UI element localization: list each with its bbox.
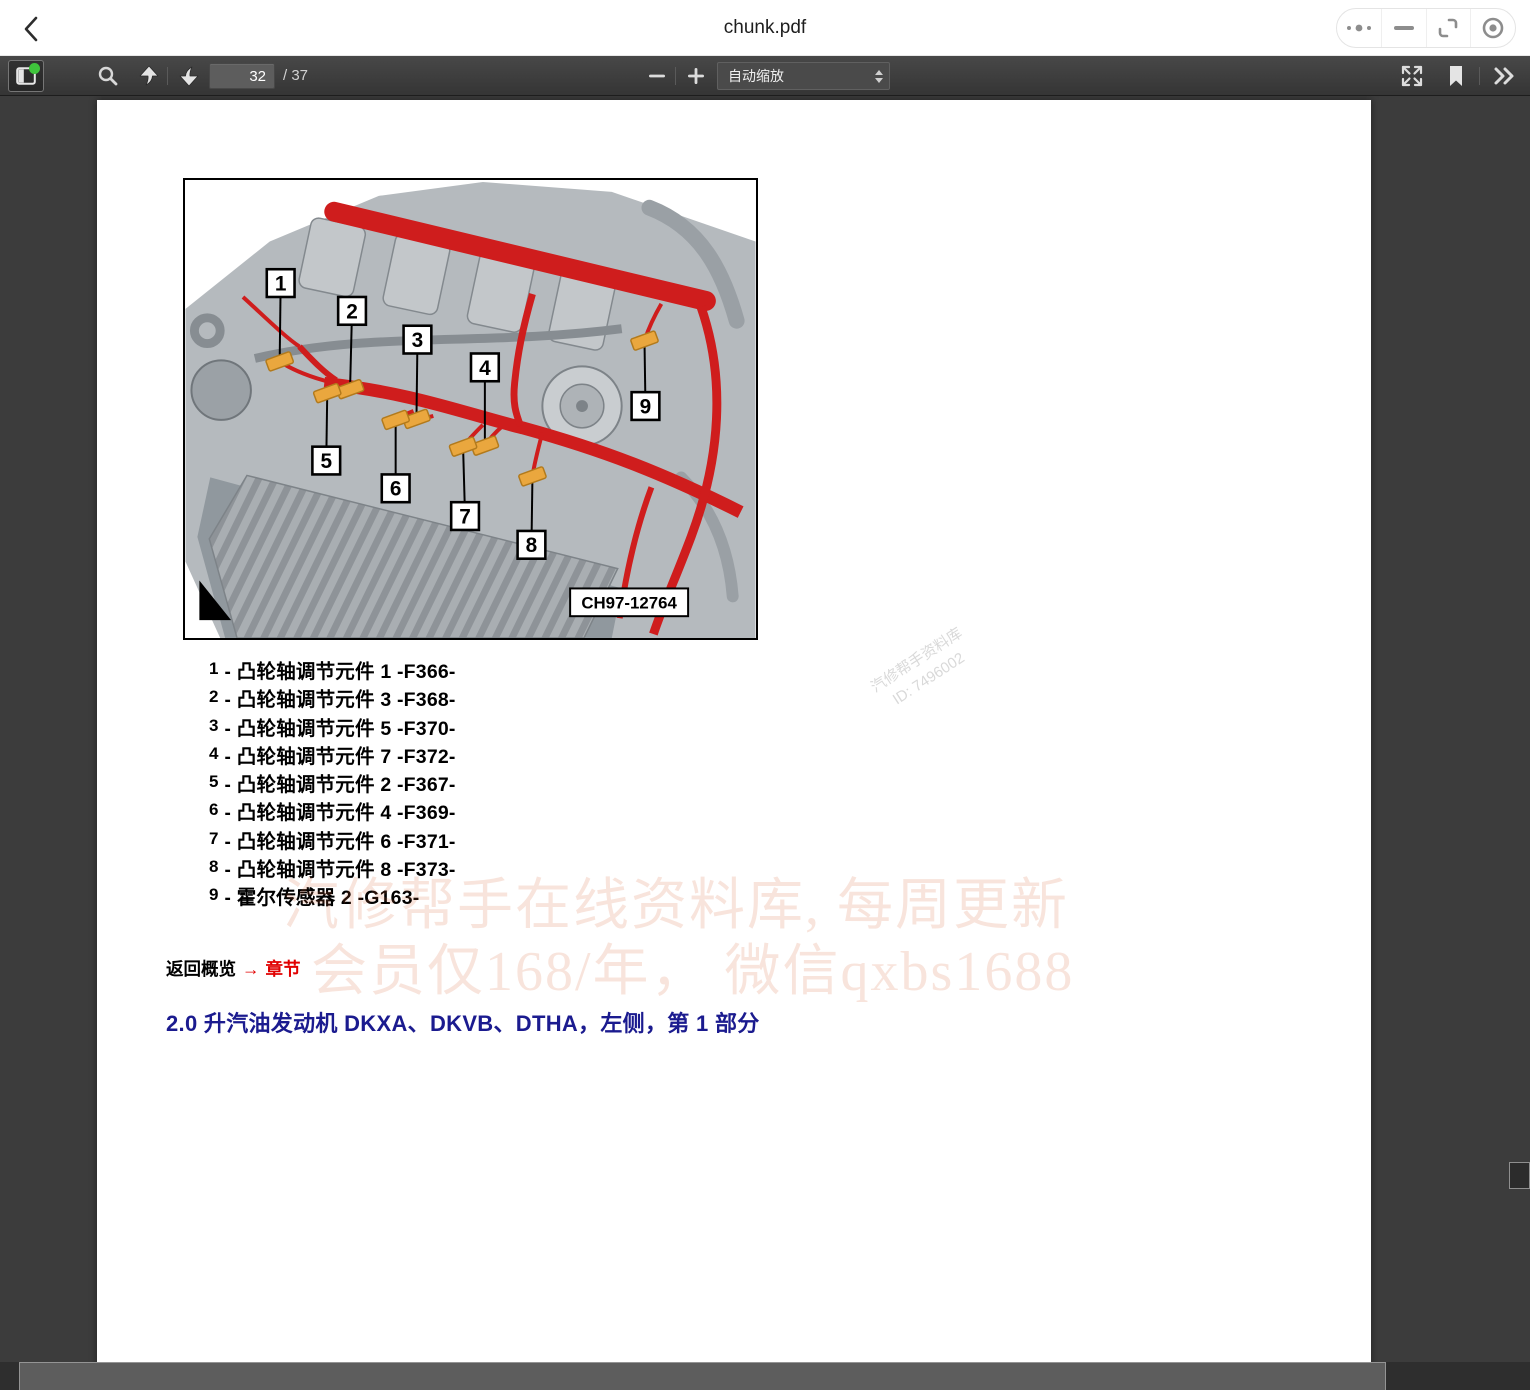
zoom-in-button[interactable] bbox=[684, 56, 708, 96]
more-tools-button[interactable] bbox=[1488, 56, 1520, 96]
presentation-mode-button[interactable] bbox=[1399, 56, 1425, 96]
legend-item-number: 9 bbox=[209, 885, 218, 904]
plus-icon bbox=[688, 68, 704, 84]
legend-item-text: 凸轮轴调节元件 7 -F372- bbox=[237, 746, 456, 768]
double-chevron-right-icon bbox=[1492, 66, 1516, 86]
legend-separator: - bbox=[224, 803, 230, 824]
legend-item-number: 7 bbox=[209, 829, 218, 848]
circle-dot-button[interactable] bbox=[1470, 9, 1515, 47]
legend-separator: - bbox=[224, 860, 230, 881]
engine-figure: 123456789 CH97-12764 bbox=[183, 178, 758, 640]
section-heading: 2.0 升汽油发动机 DKXA、DKVB、DTHA，左侧，第 1 部分 bbox=[166, 1006, 760, 1038]
callout-number-label: 2 bbox=[346, 300, 358, 323]
vertical-scrollbar-thumb[interactable] bbox=[1509, 1162, 1530, 1189]
pdf-viewer-area[interactable]: 123456789 CH97-12764 1-凸轮轴调节元件 1 -F366-2… bbox=[0, 96, 1530, 1390]
legend-separator: - bbox=[224, 775, 230, 796]
page-number-input[interactable] bbox=[209, 63, 275, 89]
back-link-label: 返回概览 bbox=[166, 959, 236, 979]
legend-separator: - bbox=[224, 662, 230, 683]
legend-item-number: 3 bbox=[209, 716, 218, 735]
arrow-up-icon bbox=[138, 65, 160, 87]
back-to-overview: 返回概览→章节 bbox=[166, 956, 301, 981]
legend-list: 1-凸轮轴调节元件 1 -F366-2-凸轮轴调节元件 3 -F368-3-凸轮… bbox=[209, 658, 456, 913]
callout-number-label: 1 bbox=[275, 273, 287, 296]
search-icon bbox=[97, 65, 119, 87]
legend-item-text: 凸轮轴调节元件 8 -F373- bbox=[237, 859, 456, 881]
bookmark-button[interactable] bbox=[1443, 56, 1469, 96]
select-spinner-icon bbox=[869, 70, 889, 83]
sidebar-toggle-button[interactable] bbox=[8, 60, 44, 92]
list-item: 9-霍尔传感器 2 -G163- bbox=[209, 884, 456, 912]
watermark-line-2: 会员仅168/年， 微信qxbs1688 bbox=[311, 926, 1074, 1007]
legend-item-number: 6 bbox=[209, 800, 218, 819]
restore-window-button[interactable] bbox=[1426, 9, 1471, 47]
bookmark-icon bbox=[1447, 65, 1465, 87]
legend-item-text: 凸轮轴调节元件 2 -F367- bbox=[237, 774, 456, 796]
horizontal-scrollbar-track[interactable] bbox=[0, 1362, 1530, 1390]
minimize-icon bbox=[1393, 24, 1415, 32]
zoom-scale-select[interactable]: 自动缩放 bbox=[717, 62, 890, 90]
list-item: 8-凸轮轴调节元件 8 -F373- bbox=[209, 856, 456, 884]
toolbar-divider bbox=[675, 67, 676, 85]
legend-item-text: 凸轮轴调节元件 3 -F368- bbox=[237, 689, 456, 711]
legend-item-text: 霍尔传感器 2 -G163- bbox=[237, 887, 420, 909]
previous-page-button[interactable] bbox=[136, 56, 162, 96]
legend-separator: - bbox=[224, 888, 230, 909]
pdf-toolbar: / 37 自动缩放 bbox=[0, 56, 1530, 96]
page-count-label: / 37 bbox=[283, 56, 308, 96]
toolbar-divider bbox=[1479, 67, 1480, 85]
callout-number-label: 6 bbox=[390, 478, 402, 501]
next-page-button[interactable] bbox=[176, 56, 202, 96]
legend-item-number: 4 bbox=[209, 744, 218, 763]
legend-separator: - bbox=[224, 747, 230, 768]
circle-dot-icon bbox=[1481, 16, 1505, 40]
list-item: 3-凸轮轴调节元件 5 -F370- bbox=[209, 715, 456, 743]
legend-item-text: 凸轮轴调节元件 6 -F371- bbox=[237, 831, 456, 853]
chapter-link[interactable]: 章节 bbox=[266, 959, 301, 979]
legend-item-text: 凸轮轴调节元件 4 -F369- bbox=[237, 802, 456, 824]
list-item: 6-凸轮轴调节元件 4 -F369- bbox=[209, 799, 456, 827]
fullscreen-icon bbox=[1401, 65, 1423, 87]
callout-number-label: 9 bbox=[640, 395, 652, 418]
restore-window-icon bbox=[1436, 16, 1460, 40]
legend-separator: - bbox=[224, 832, 230, 853]
list-item: 4-凸轮轴调节元件 7 -F372- bbox=[209, 743, 456, 771]
more-options-button[interactable] bbox=[1337, 9, 1381, 47]
document-title: chunk.pdf bbox=[0, 0, 1530, 56]
legend-separator: - bbox=[224, 690, 230, 711]
find-button[interactable] bbox=[95, 56, 121, 96]
callout-number-label: 8 bbox=[526, 534, 538, 557]
figure-code-label: CH97-12764 bbox=[581, 593, 677, 612]
zoom-out-button[interactable] bbox=[645, 56, 669, 96]
title-bar: chunk.pdf bbox=[0, 0, 1530, 56]
list-item: 7-凸轮轴调节元件 6 -F371- bbox=[209, 828, 456, 856]
diagonal-watermark: 汽修帮手资料库 ID: 7496002 bbox=[836, 603, 1011, 738]
pdf-page: 123456789 CH97-12764 1-凸轮轴调节元件 1 -F366-2… bbox=[97, 100, 1371, 1390]
callout-number-label: 3 bbox=[412, 329, 424, 352]
toolbar-divider bbox=[167, 67, 168, 85]
legend-separator: - bbox=[224, 719, 230, 740]
window-controls bbox=[1336, 8, 1516, 48]
legend-item-number: 2 bbox=[209, 687, 218, 706]
legend-item-text: 凸轮轴调节元件 1 -F366- bbox=[237, 661, 456, 683]
legend-item-number: 1 bbox=[209, 659, 218, 678]
engine-illustration: 123456789 CH97-12764 bbox=[185, 180, 756, 638]
sidebar-notification-dot bbox=[29, 63, 40, 74]
minimize-button[interactable] bbox=[1381, 9, 1426, 47]
minus-icon bbox=[649, 74, 665, 78]
list-item: 2-凸轮轴调节元件 3 -F368- bbox=[209, 686, 456, 714]
arrow-down-icon bbox=[178, 65, 200, 87]
arrow-right-icon: → bbox=[242, 959, 260, 979]
legend-item-text: 凸轮轴调节元件 5 -F370- bbox=[237, 718, 456, 740]
callout-number-label: 4 bbox=[479, 357, 491, 380]
callout-number-label: 7 bbox=[459, 506, 471, 529]
legend-item-number: 8 bbox=[209, 857, 218, 876]
legend-item-number: 5 bbox=[209, 772, 218, 791]
list-item: 5-凸轮轴调节元件 2 -F367- bbox=[209, 771, 456, 799]
list-item: 1-凸轮轴调节元件 1 -F366- bbox=[209, 658, 456, 686]
callout-number-label: 5 bbox=[320, 450, 332, 473]
zoom-scale-value: 自动缩放 bbox=[718, 66, 869, 86]
ellipsis-icon bbox=[1345, 22, 1373, 34]
horizontal-scrollbar-thumb[interactable] bbox=[19, 1362, 1386, 1390]
